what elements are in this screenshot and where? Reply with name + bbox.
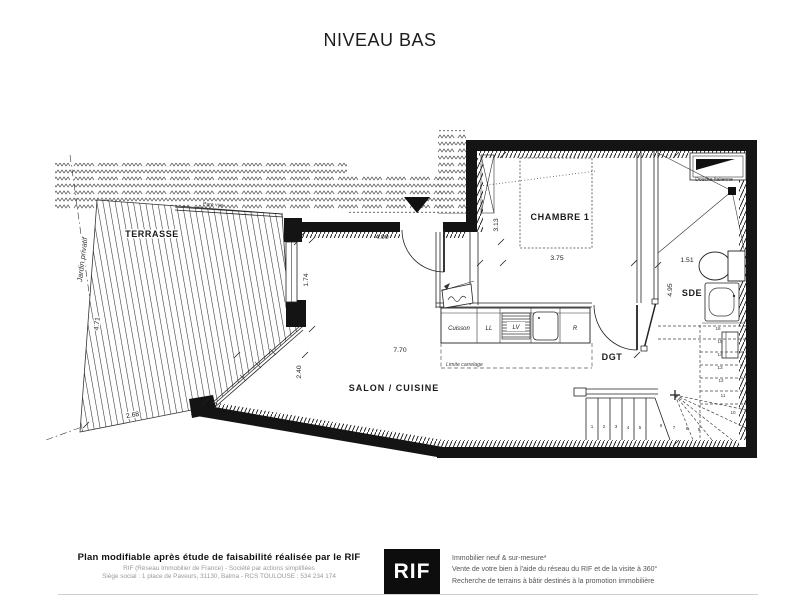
label-salon-cuisine: SALON / CUISINE [349,383,440,393]
stair-number-13: 13 [717,365,723,370]
label-limite-carrelage: Limite carrelage [446,362,483,368]
stair-number-5: 5 [639,425,642,430]
footer-address-line: Siège social : 1 place de Paveurs, 31130… [58,573,380,580]
label-dgt: DGT [602,352,623,362]
shower-shelf [690,153,746,180]
washbasin [702,283,744,323]
stair-number-10: 10 [730,410,736,415]
stair-number-14: 14 [717,352,723,357]
sde-cabinet [722,332,738,358]
chambre-door-arc [594,305,637,350]
stair-number-16: 16 [715,326,721,331]
ceiling-slope-line [480,171,596,186]
footer-company-line: RIF (Réseau Immobilier de France) - Soci… [58,565,380,572]
dim-1-74: 1.74 [303,273,310,286]
dim-3-75: 3.75 [550,255,563,262]
label-terrasse: TERRASSE [125,229,179,239]
dim-2-40: 2.40 [296,365,303,378]
terrace-area [80,200,302,432]
label-lv: LV [512,325,520,331]
dim-4-00: 4.00 [375,234,388,241]
stair-number-4: 4 [627,425,630,430]
dim-4-95: 4.95 [667,283,674,296]
stair-number-11: 11 [721,393,726,398]
stair-number-6: 6 [660,423,663,428]
stair-number-12: 12 [718,378,724,383]
rif-logo: RIF [384,549,440,595]
stair-number-3: 3 [615,424,618,429]
stair-number-1: 1 [591,424,594,429]
stair-number-15: 15 [717,339,723,344]
sde-door [641,299,658,351]
footer-bold-line: Plan modifiable après étude de faisabili… [58,552,380,563]
dim-7-70: 7.70 [393,347,406,354]
label-sde: SDE [682,288,702,298]
footer-left-block: Plan modifiable après étude de faisabili… [58,552,380,580]
dim-1-51: 1.51 [680,257,693,264]
stair-number-8: 8 [686,426,689,431]
footer-service-line-3: Recherche de terrains à bâtir destinés à… [452,576,657,587]
label-cuisson: Cuisson [448,326,470,332]
terrace-window [286,242,297,302]
floor-plan-page: NIVEAU BAS [0,0,800,600]
footer-right-block: Immobilier neuf & sur-mesure* Vente de v… [452,553,657,587]
footer-service-line-2: Vente de votre bien à l'aide du réseau d… [452,564,657,575]
toilet [699,251,745,281]
bed-outline [520,158,592,248]
stair-number-7: 7 [673,425,676,430]
stair-number-2: 2 [603,424,606,429]
entry-washbasin-cabinet [441,281,474,308]
footer-divider [58,594,758,595]
label-jardin-privatif: Jardin privatif [75,236,90,283]
kitchen-sink [533,312,558,340]
sde-room [641,153,746,358]
dim-4-71: 4.71 [93,317,101,331]
label-r: R [573,326,578,332]
stair-number-9: 9 [698,427,701,432]
label-ll: LL [486,326,493,332]
floor-plan-drawing: TERRASSE CHAMBRE 1 SALON / CUISINE SDE D… [0,0,800,545]
dim-3-13: 3.13 [493,218,500,231]
footer-service-line-1: Immobilier neuf & sur-mesure* [452,553,657,564]
label-douche-italienne: Douche Italienne [695,177,733,183]
page-title: NIVEAU BAS [0,30,760,51]
label-chambre-1: CHAMBRE 1 [531,212,590,222]
